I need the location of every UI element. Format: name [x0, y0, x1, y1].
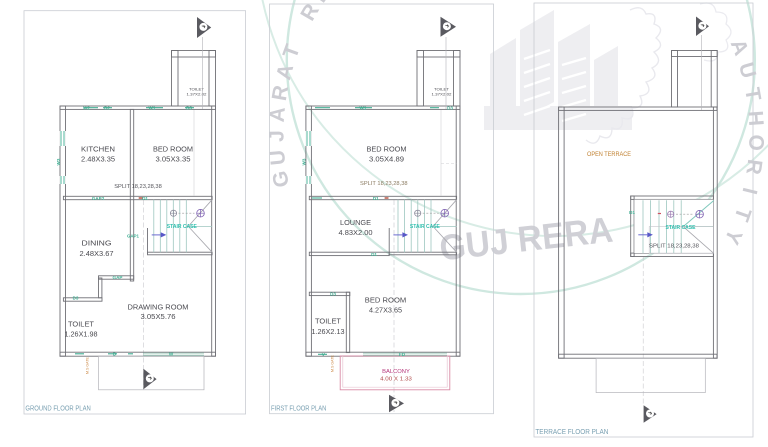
svg-text:1.26X2.13: 1.26X2.13	[312, 327, 345, 336]
svg-text:BED ROOM: BED ROOM	[153, 145, 193, 154]
svg-text:OPEN TERRACE: OPEN TERRACE	[587, 152, 631, 158]
svg-text:BED ROOM: BED ROOM	[367, 145, 407, 154]
svg-text:STAIR CASE: STAIR CASE	[666, 225, 696, 231]
svg-text:D3: D3	[447, 105, 453, 110]
svg-text:1.37X2.02: 1.37X2.02	[187, 92, 208, 97]
svg-text:TERRACE FLOOR PLAN: TERRACE FLOOR PLAN	[535, 427, 608, 436]
svg-text:4.27X3.65: 4.27X3.65	[369, 306, 402, 315]
svg-text:R: R	[741, 158, 766, 176]
svg-text:GAP2: GAP2	[92, 196, 105, 201]
svg-text:D1: D1	[142, 196, 148, 201]
svg-text:STAIR CASE: STAIR CASE	[410, 224, 440, 230]
svg-text:W3: W3	[56, 158, 61, 165]
svg-text:2.48X3.67: 2.48X3.67	[80, 249, 114, 258]
svg-text:3.05X3.35: 3.05X3.35	[156, 155, 191, 164]
svg-text:D2: D2	[104, 105, 110, 110]
svg-text:D3: D3	[186, 105, 192, 110]
svg-text:GAP: GAP	[113, 275, 123, 280]
svg-text:D1: D1	[373, 196, 379, 201]
svg-text:D1: D1	[371, 252, 377, 257]
svg-text:2.48X3.35: 2.48X3.35	[81, 155, 115, 164]
svg-text:4.83X2.00: 4.83X2.00	[339, 228, 373, 237]
svg-text:KITCHEN: KITCHEN	[81, 145, 115, 154]
svg-text:FIRST FLOOR PLAN: FIRST FLOOR PLAN	[271, 403, 326, 412]
svg-text:W1: W1	[149, 105, 156, 110]
svg-text:D3: D3	[73, 296, 79, 301]
svg-text:3.05X4.89: 3.05X4.89	[369, 155, 404, 164]
svg-text:TOILET: TOILET	[68, 320, 94, 329]
svg-text:SPLIT 18,23,28,38: SPLIT 18,23,28,38	[649, 243, 699, 249]
svg-text:SPLIT 18,23,28,38: SPLIT 18,23,28,38	[114, 184, 162, 190]
svg-text:DINING: DINING	[82, 239, 112, 248]
svg-text:LOUNGE: LOUNGE	[340, 218, 371, 227]
svg-text:H: H	[743, 110, 767, 127]
svg-text:GAP1: GAP1	[127, 234, 140, 239]
svg-text:W1: W1	[360, 105, 367, 110]
svg-text:W3: W3	[302, 158, 307, 165]
svg-text:4.00 X 1.33: 4.00 X 1.33	[380, 377, 412, 383]
svg-text:STAIR CASE: STAIR CASE	[167, 224, 197, 230]
svg-text:O: O	[744, 134, 768, 151]
svg-text:FD: FD	[399, 352, 406, 357]
svg-text:SPLIT 18,23,28,38: SPLIT 18,23,28,38	[360, 181, 408, 187]
svg-text:1.26X1.98: 1.26X1.98	[65, 330, 98, 339]
svg-text:DRAWING ROOM: DRAWING ROOM	[128, 303, 189, 312]
svg-text:1.37X2.02: 1.37X2.02	[432, 92, 453, 97]
svg-text:J: J	[265, 130, 288, 142]
svg-text:BED ROOM: BED ROOM	[365, 296, 407, 305]
svg-text:3.05X5.76: 3.05X5.76	[141, 312, 176, 321]
svg-text:TOILET: TOILET	[315, 317, 341, 326]
svg-text:W2: W2	[83, 105, 90, 110]
svg-text:W: W	[169, 351, 174, 356]
svg-text:GROUND FLOOR PLAN: GROUND FLOOR PLAN	[25, 403, 90, 412]
svg-text:D3: D3	[330, 291, 336, 296]
svg-text:D1: D1	[629, 210, 635, 215]
svg-text:M.S GATE: M.S GATE	[86, 356, 90, 374]
svg-text:BALCONY: BALCONY	[382, 369, 410, 375]
svg-text:M.S GATE: M.S GATE	[331, 354, 335, 372]
